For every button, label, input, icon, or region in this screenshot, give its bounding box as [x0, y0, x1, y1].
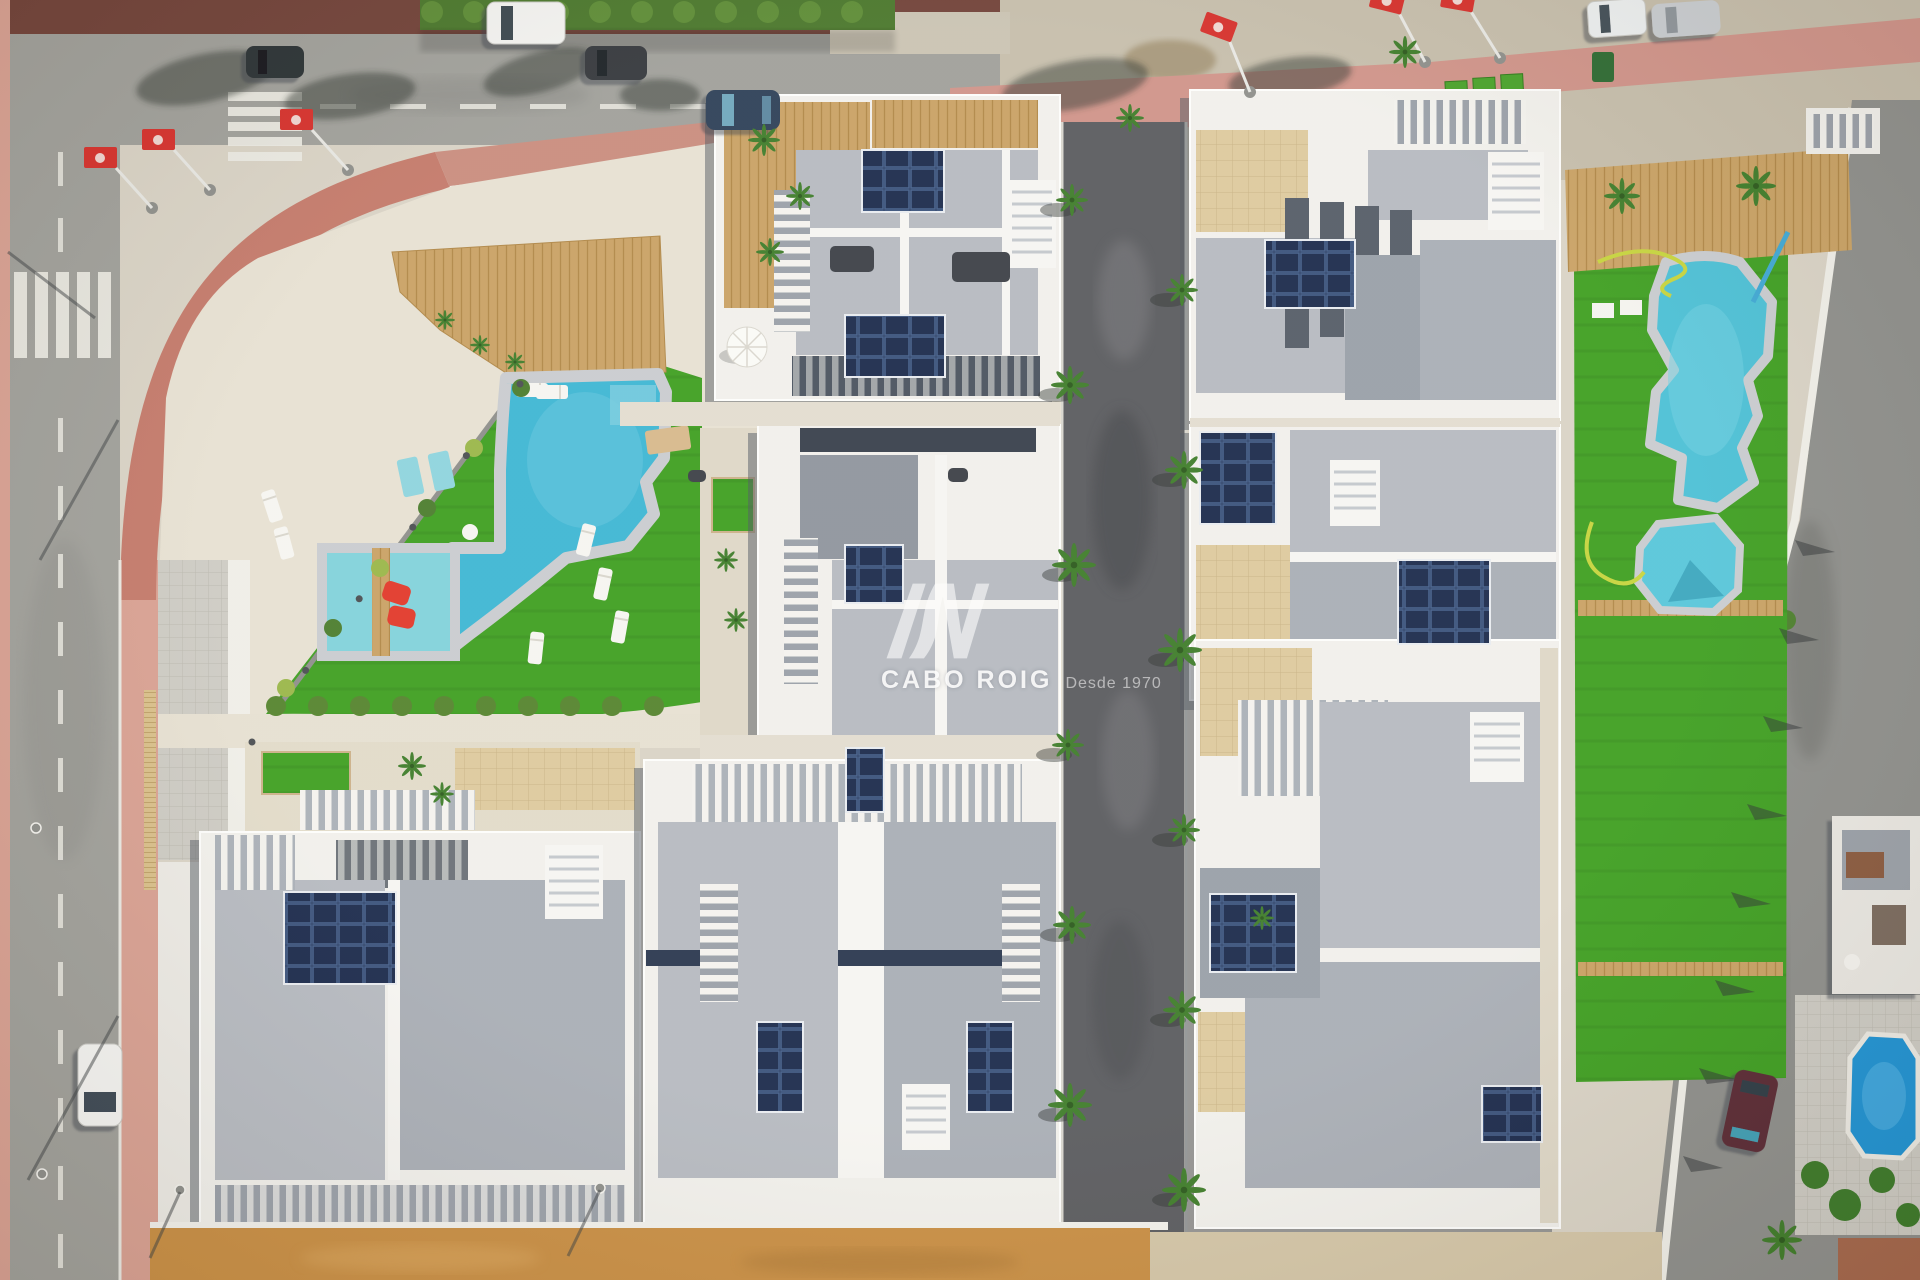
solar-panel-array	[845, 545, 903, 603]
entrance-pergola	[300, 790, 475, 830]
palm-tree	[1116, 104, 1144, 132]
solar-panel-array	[845, 315, 945, 377]
lane-dash	[58, 758, 63, 792]
inner-sidewalk-pink	[120, 560, 158, 1280]
hedge-bush	[463, 1, 485, 23]
hedge-bush	[518, 696, 538, 716]
lane-dash	[58, 894, 63, 928]
palm-tree	[1762, 1220, 1802, 1260]
crosswalk-stripe	[14, 272, 27, 358]
fence-post	[463, 452, 470, 459]
solar-panel-array	[862, 150, 944, 212]
lane-dash	[58, 962, 63, 996]
lane-dash	[460, 104, 496, 109]
hedge-bush	[673, 1, 695, 23]
glass-canopy	[800, 428, 1036, 452]
palm-tree	[724, 608, 748, 632]
glass-skylight	[646, 950, 704, 966]
balcony-band	[215, 1185, 625, 1223]
palm-tree	[1052, 543, 1096, 587]
palm-tree	[714, 548, 738, 572]
hedge-bush	[277, 679, 295, 697]
silver-car-top-right	[1651, 0, 1721, 38]
crosswalk-stripe	[98, 272, 111, 358]
crosswalk-stripe	[77, 272, 90, 358]
crosswalk-stripe	[228, 152, 302, 161]
hedge-bush	[631, 1, 653, 23]
hedge-bush	[421, 1, 443, 23]
ac-unit	[688, 470, 706, 482]
palm-tree	[430, 782, 454, 806]
lane-dash	[58, 690, 63, 724]
gravel-path-4	[1190, 418, 1560, 427]
hedge-bush	[560, 696, 580, 716]
hedge-bush	[350, 696, 370, 716]
lamp-head	[37, 1169, 47, 1179]
palm-tree	[1056, 184, 1088, 216]
left-sidewalk-pink	[0, 0, 10, 1280]
lane-dash	[58, 1234, 63, 1268]
lamp-head	[31, 823, 41, 833]
glass-skylight-2	[838, 950, 1010, 966]
palm-tree	[505, 352, 525, 372]
solar-panel-array	[1482, 1086, 1542, 1142]
crosswalk-stripe	[228, 137, 302, 146]
palm-tree	[786, 182, 814, 210]
villa-bottom-center	[644, 760, 1060, 1228]
wood-walkway-2	[1578, 962, 1783, 976]
palm-tree	[1053, 906, 1091, 944]
solar-panel-array	[1200, 432, 1276, 524]
palm-tree	[756, 238, 784, 266]
villa-top-right	[1190, 90, 1560, 420]
palm-tree	[1165, 451, 1203, 489]
solar-panel-array	[1398, 560, 1490, 644]
hedge-bush	[418, 499, 436, 517]
pergola	[700, 884, 738, 1002]
hedge-bush	[324, 619, 342, 637]
hedge-bush	[602, 696, 622, 716]
hedge-bush	[392, 696, 412, 716]
villa-bottom-left	[200, 742, 640, 1228]
pergola	[784, 538, 818, 684]
palm-tree	[1163, 991, 1201, 1029]
hedge-bush	[715, 1, 737, 23]
pergola	[1394, 100, 1526, 144]
solar-panel-array	[284, 892, 396, 984]
lane-dash	[58, 418, 63, 452]
black-car-top-left	[246, 46, 304, 78]
fence-post	[249, 739, 256, 746]
hedge-bush	[799, 1, 821, 23]
aerial-photo: CABO ROIG Desde 1970	[0, 0, 1920, 1280]
sand-strip	[1150, 1232, 1662, 1280]
fence-post	[517, 381, 524, 388]
palm-tree	[1250, 906, 1274, 930]
sun-lounger	[536, 385, 568, 399]
villa-mid-center	[758, 425, 1060, 775]
staircase	[1488, 152, 1544, 230]
crosswalk-stripe	[35, 272, 48, 358]
palm-tree	[1162, 1168, 1206, 1212]
neighbour-building	[1832, 816, 1920, 994]
staircase	[545, 845, 603, 919]
dirt-strip	[150, 1228, 1150, 1280]
bamboo-fence	[144, 690, 156, 890]
pergola	[215, 835, 295, 890]
scene	[0, 0, 1920, 1280]
palm-tree	[470, 335, 490, 355]
stain	[1092, 920, 1148, 1080]
hedge-bush	[308, 696, 328, 716]
palm-tree	[1166, 274, 1198, 306]
white-car-left-road	[78, 1044, 122, 1126]
lane-dash	[58, 1166, 63, 1200]
white-van-top-right	[1587, 0, 1647, 38]
palm-tree	[1052, 729, 1084, 761]
fence-post	[356, 595, 363, 602]
palm-shadow	[620, 79, 700, 111]
staircase	[1330, 460, 1380, 526]
lane-dash	[58, 1030, 63, 1064]
solar-panel-array	[1265, 240, 1355, 308]
solar-panel-array	[846, 748, 884, 812]
lane-dash	[58, 826, 63, 860]
crosswalk-stripe	[56, 272, 69, 358]
staircase	[1470, 712, 1524, 782]
blue-hatchback	[706, 90, 780, 130]
palm-tree	[1389, 36, 1421, 68]
ac-unit	[952, 252, 1010, 282]
solar-panel-array	[967, 1022, 1013, 1112]
star-float	[462, 524, 478, 540]
palm-tree	[398, 752, 426, 780]
ac-unit	[948, 468, 968, 482]
lane-dash	[58, 554, 63, 588]
staircase	[902, 1084, 950, 1150]
pergola-2	[1002, 884, 1040, 1002]
gravel-path-3	[620, 402, 1060, 426]
brick-paving	[1838, 1238, 1920, 1280]
solar-panel-array	[757, 1022, 803, 1112]
staircase	[1008, 180, 1056, 268]
palm-tree	[1604, 178, 1640, 214]
stain	[1102, 690, 1154, 830]
stain	[1098, 240, 1150, 360]
white-van-top-left	[487, 2, 565, 44]
courtyard-lawn	[712, 478, 754, 532]
lane-dash	[58, 152, 63, 186]
palm-tree	[1168, 814, 1200, 846]
hedge-bush	[841, 1, 863, 23]
hedge-bush	[371, 559, 389, 577]
lane-dash	[58, 486, 63, 520]
solar-panel-array	[1210, 894, 1296, 972]
hedge-bush	[434, 696, 454, 716]
palm-tree	[1051, 366, 1089, 404]
tiled-patio	[455, 748, 635, 810]
hedge-bush	[589, 1, 611, 23]
fence-post	[302, 667, 309, 674]
palm-tree	[1736, 166, 1776, 206]
lane-dash	[58, 622, 63, 656]
palm-tree	[435, 310, 455, 330]
hedge-bush	[644, 696, 664, 716]
hedge-bush	[266, 696, 286, 716]
hedge-bush	[757, 1, 779, 23]
courtyard-lawn	[262, 752, 350, 794]
hedge-bush	[476, 696, 496, 716]
dark-suv-top-left	[585, 46, 647, 80]
lane-dash	[530, 104, 566, 109]
fence-post	[409, 524, 416, 531]
stain	[1092, 410, 1152, 590]
palm-tree	[1158, 628, 1202, 672]
green-dumpster	[1592, 52, 1614, 82]
ac-unit	[830, 246, 874, 272]
palm-tree	[748, 124, 780, 156]
palm-tree	[1048, 1083, 1092, 1127]
lane-dash	[58, 218, 63, 252]
